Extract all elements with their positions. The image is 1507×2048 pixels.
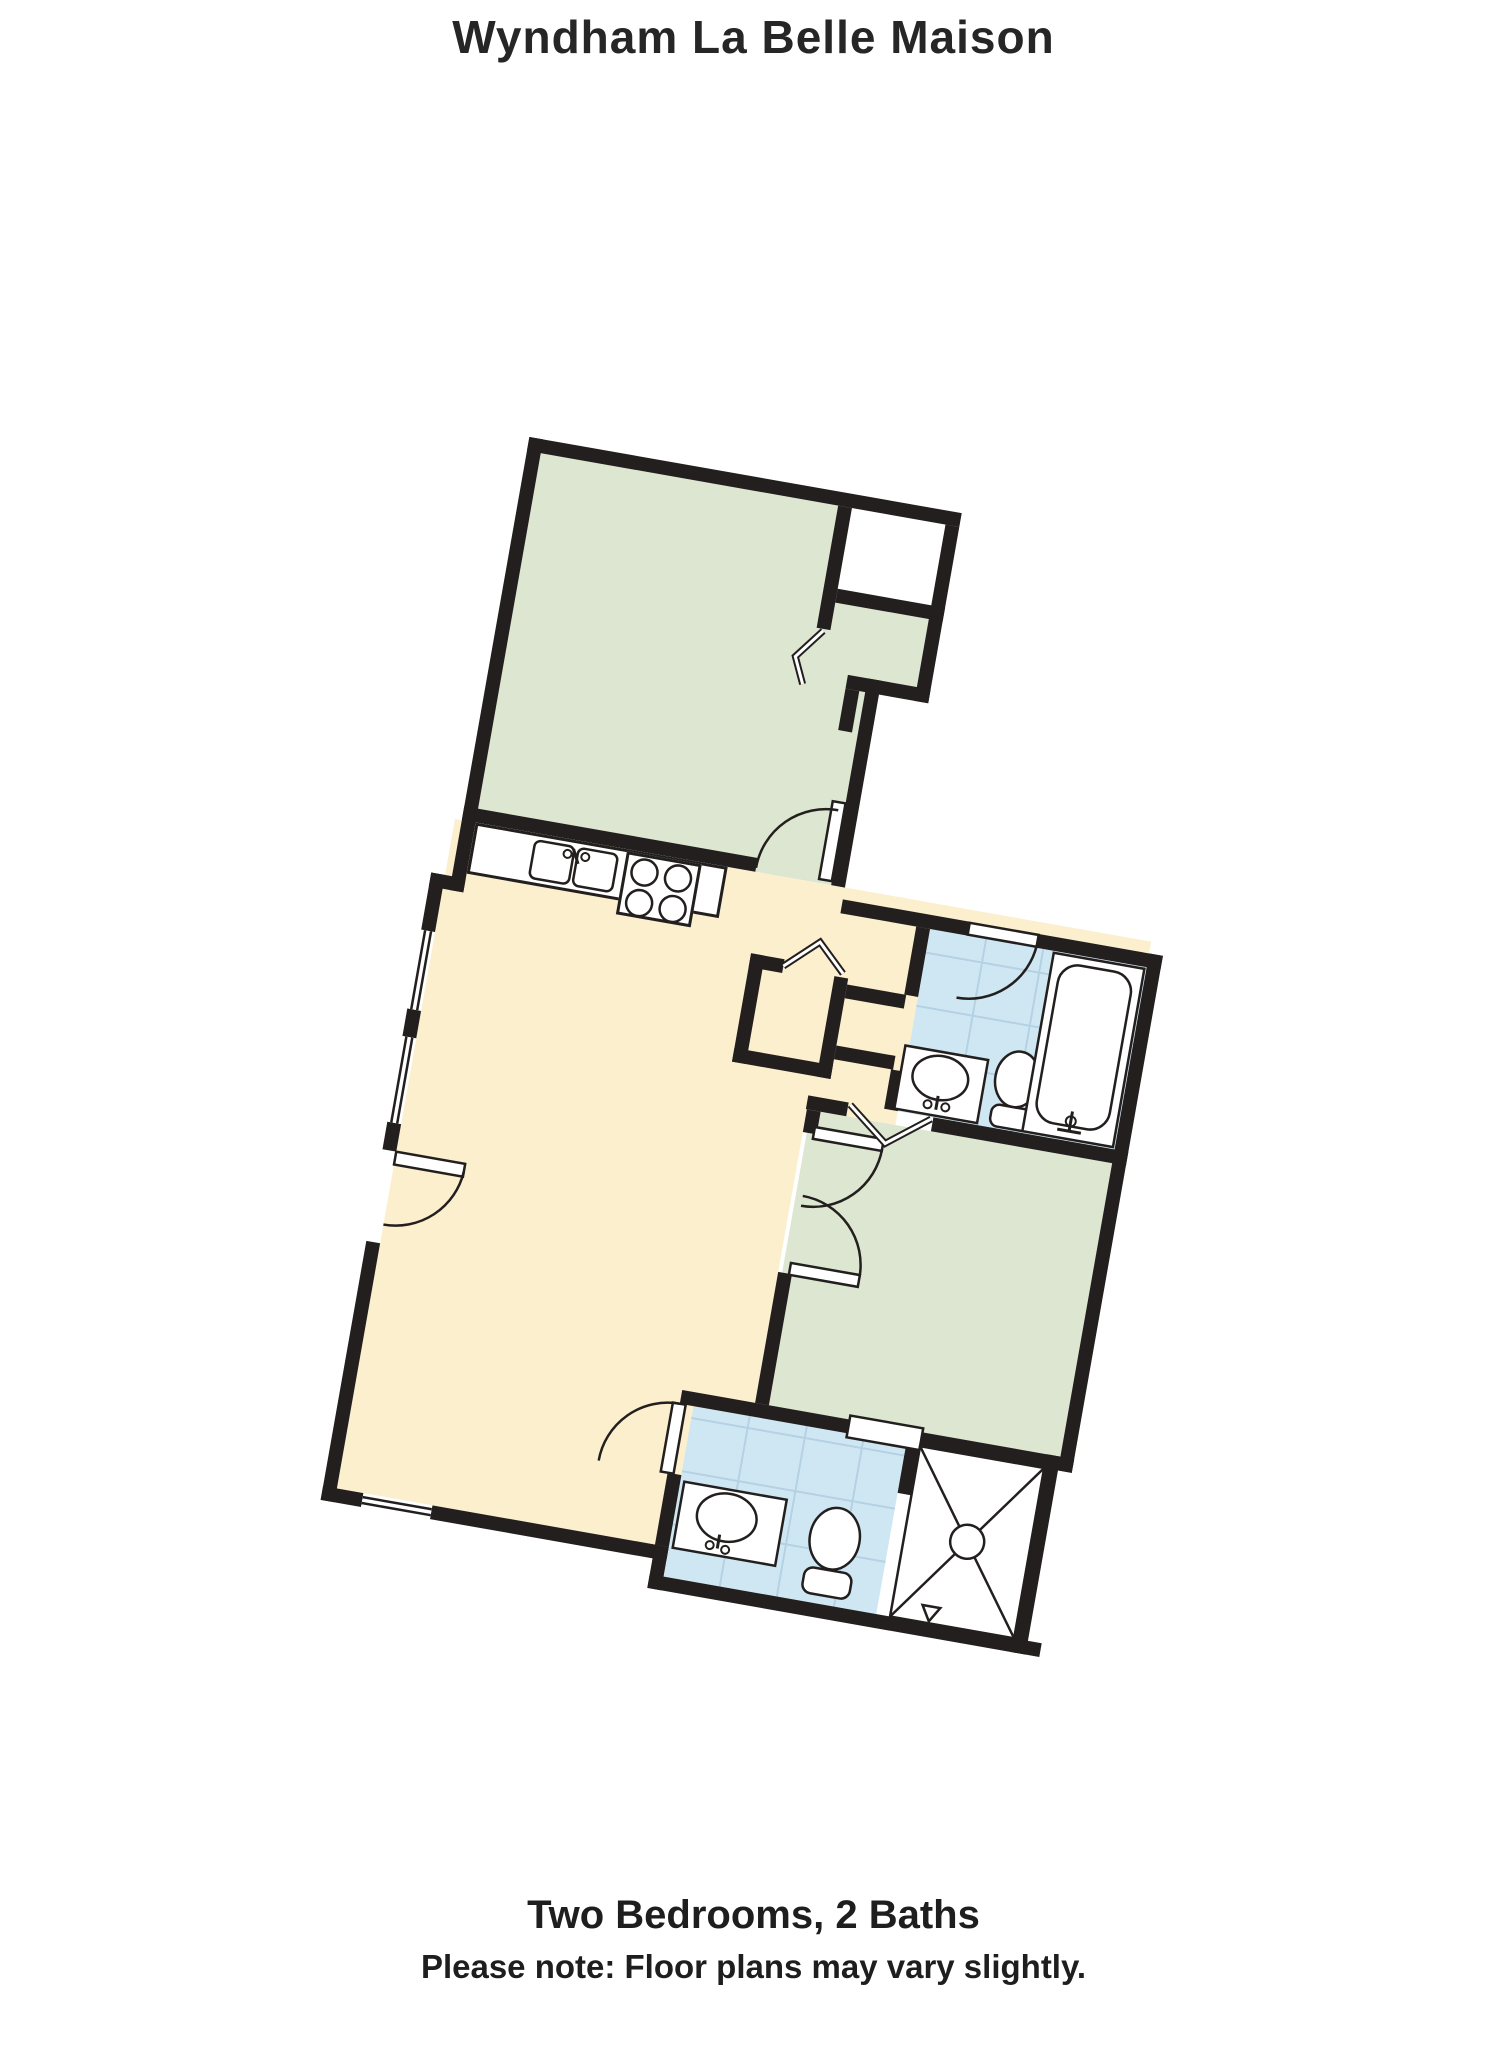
window-left-2 bbox=[387, 1036, 416, 1124]
bathroom1-door bbox=[957, 923, 1039, 1010]
bedroom2-french-doors bbox=[789, 1127, 884, 1287]
plan-symbols bbox=[285, 430, 1278, 1731]
bedroom1-door bbox=[756, 790, 846, 881]
bathroom2-toilet bbox=[800, 1504, 865, 1600]
floor-plan bbox=[285, 430, 1278, 1731]
window-left-1 bbox=[407, 930, 435, 1011]
page-title: Wyndham La Belle Maison bbox=[0, 10, 1507, 64]
kitchen-sink bbox=[529, 840, 618, 892]
entry-door bbox=[383, 1152, 465, 1237]
bathroom1-vanity-sink bbox=[894, 1045, 988, 1123]
footer-note: Please note: Floor plans may vary slight… bbox=[0, 1948, 1507, 1986]
closet1-bifold-door bbox=[791, 627, 823, 686]
bathroom2-door bbox=[599, 1392, 686, 1474]
pocket-door bbox=[847, 1416, 924, 1451]
bathroom2-vanity-sink bbox=[673, 1482, 787, 1566]
shower bbox=[890, 1446, 1044, 1638]
window-bottom bbox=[361, 1493, 432, 1519]
floor-plan-page: Wyndham La Belle Maison bbox=[0, 0, 1507, 2048]
bathtub bbox=[1022, 953, 1144, 1147]
hall-closet-bifold-door bbox=[783, 937, 847, 977]
stove bbox=[624, 857, 693, 924]
footer-caption: Two Bedrooms, 2 Baths bbox=[0, 1893, 1507, 1938]
